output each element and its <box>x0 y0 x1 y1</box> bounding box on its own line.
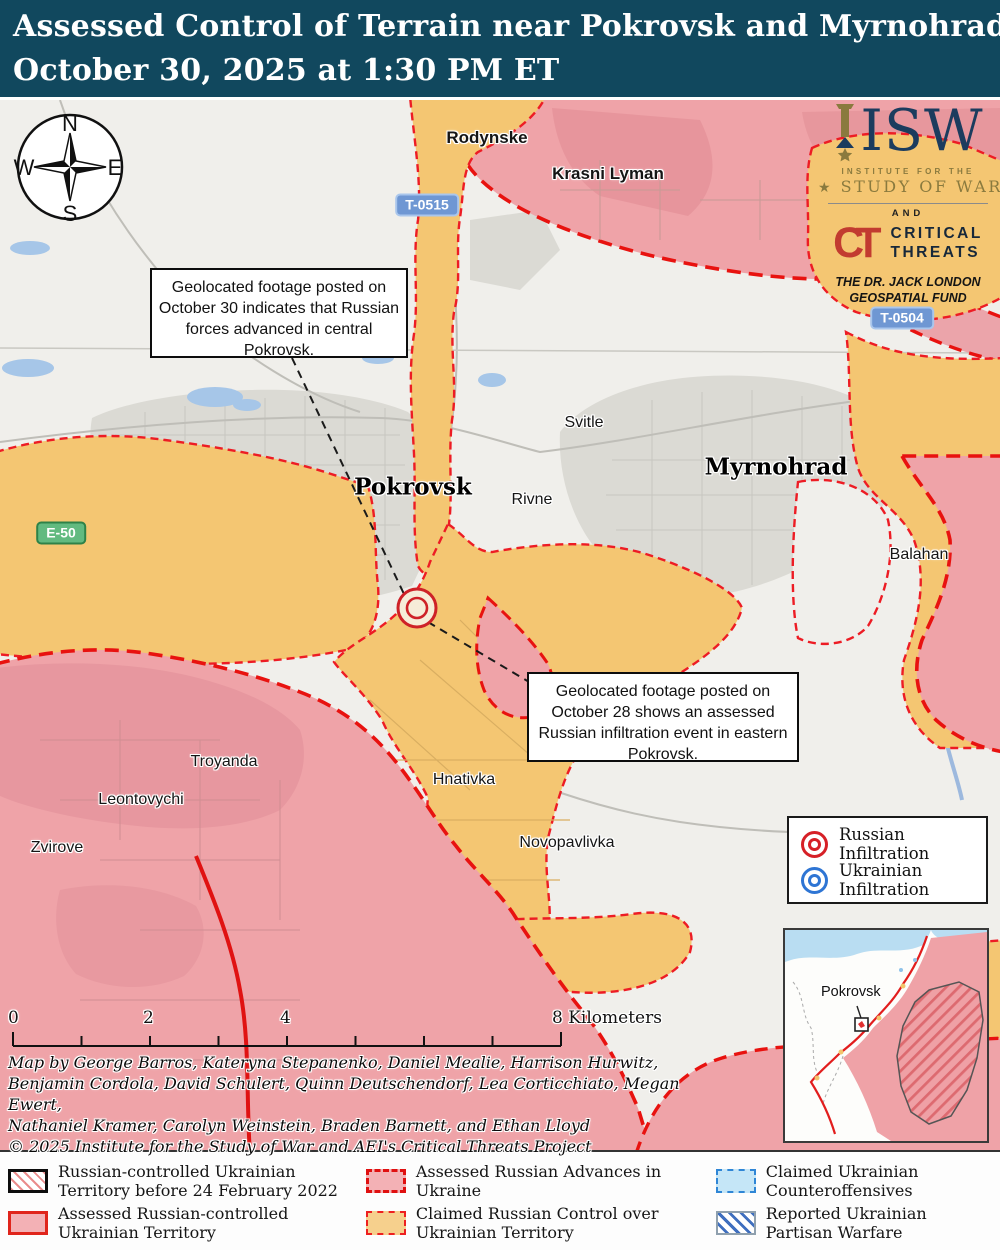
isw-study-of-war-text: ★ STUDY OF WAR <box>818 177 998 196</box>
scale-bar: 0 2 4 8 Kilometers <box>12 1008 712 1052</box>
road-shield-t0504: T-0504 <box>870 307 934 330</box>
place-label-novopavlivka: Novopavlivka <box>519 834 614 852</box>
page-title-line1: Assessed Control of Terrain near Pokrovs… <box>13 5 987 49</box>
place-label-zvirove: Zvirove <box>31 839 83 857</box>
scale-0: 0 <box>8 1008 19 1028</box>
swatch-ukrainian-counteroffensives <box>716 1169 756 1193</box>
swatch-claimed-russian <box>366 1211 406 1235</box>
claimed-russian-band-west <box>0 436 378 664</box>
credits-line3: Nathaniel Kramer, Carolyn Weinstein, Bra… <box>8 1115 688 1136</box>
map-credits: Map by George Barros, Kateryna Stepanenk… <box>8 1052 688 1157</box>
ct-monogram: CT <box>833 221 881 265</box>
critical-threats-logo: CT CRITICAL THREATS <box>818 221 998 265</box>
legend-item-prewar: Russian-controlled Ukrainian Territory b… <box>8 1160 366 1202</box>
swatch-partisan-warfare <box>716 1211 756 1235</box>
scale-4: 4 <box>280 1008 291 1028</box>
credits-line4: © 2025 Institute for the Study of War an… <box>8 1136 688 1157</box>
place-label-troyanda: Troyanda <box>191 753 258 771</box>
page-title-line2: October 30, 2025 at 1:30 PM ET <box>13 49 987 93</box>
place-label-krasni-lyman: Krasni Lyman <box>552 164 664 184</box>
legend-item-partisan: Reported Ukrainian Partisan Warfare <box>716 1202 994 1244</box>
inset-graphics <box>785 930 987 1141</box>
compass-s: S <box>63 201 78 226</box>
compass-e: E <box>108 155 123 180</box>
swatch-assessed-russian <box>8 1211 48 1235</box>
inset-pokrovsk-label: Pokrovsk <box>821 984 881 1000</box>
place-label-rodynske: Rodynske <box>446 128 527 148</box>
legend-item-assessed-control: Assessed Russian-controlled Ukrainian Te… <box>8 1202 366 1244</box>
compass-n: N <box>62 111 78 136</box>
legend-item-counteroffensives: Claimed Ukrainian Counteroffensives <box>716 1160 994 1202</box>
road-shield-t0515: T-0515 <box>395 194 459 217</box>
scale-2: 2 <box>143 1008 154 1028</box>
place-label-svitle: Svitle <box>564 414 603 432</box>
map-canvas: N E S W ISW INSTITUTE FOR THE <box>0 100 1000 1150</box>
swatch-russian-advances <box>366 1169 406 1193</box>
scale-8km: 8 Kilometers <box>552 1008 662 1028</box>
place-label-rivne: Rivne <box>512 491 553 509</box>
ct-threats-text: THREATS <box>891 243 983 262</box>
isw-institute-text: INSTITUTE FOR THE <box>818 167 998 176</box>
geospatial-fund-text: THE DR. JACK LONDON GEOSPATIAL FUND <box>818 274 998 306</box>
isw-pillar-icon <box>832 102 858 167</box>
credits-line2: Benjamin Cordola, David Schulert, Quinn … <box>8 1073 688 1115</box>
isw-wordmark: ISW <box>860 102 983 160</box>
place-label-myrnohrad: Myrnohrad <box>705 454 848 481</box>
ukrainian-infiltration-icon <box>801 867 828 894</box>
place-label-hnativka: Hnativka <box>433 771 495 789</box>
star-icon: ★ <box>818 180 833 196</box>
ct-critical-text: CRITICAL <box>891 224 983 243</box>
place-label-pokrovsk: Pokrovsk <box>354 474 472 501</box>
road-shield-e50: E-50 <box>36 522 86 545</box>
infiltration-legend-box: Russian Infiltration Ukrainian Infiltrat… <box>787 816 988 904</box>
russian-infiltration-icon <box>801 831 828 858</box>
credits-line1: Map by George Barros, Kateryna Stepanenk… <box>8 1052 688 1073</box>
swatch-prewar-territory <box>8 1169 48 1193</box>
scale-bar-ticks <box>12 1030 572 1048</box>
inset-locator-map: Pokrovsk <box>783 928 989 1143</box>
compass-w: W <box>14 155 35 180</box>
isw-ct-logo-block: ISW INSTITUTE FOR THE ★ STUDY OF WAR AND… <box>818 102 998 306</box>
isw-map-page: Assessed Control of Terrain near Pokrovs… <box>0 0 1000 1250</box>
legend-item-advances: Assessed Russian Advances in Ukraine <box>366 1160 716 1202</box>
place-label-leontovychi: Leontovychi <box>98 791 183 809</box>
callout-october-30: Geolocated footage posted on October 30 … <box>150 268 408 358</box>
place-label-balahan: Balahan <box>890 546 949 564</box>
legend-ukrainian-infiltration: Ukrainian Infiltration <box>801 862 986 898</box>
callout-october-28: Geolocated footage posted on October 28 … <box>527 672 799 762</box>
legend-russian-infiltration: Russian Infiltration <box>801 826 986 862</box>
legend-item-claimed-control: Claimed Russian Control over Ukrainian T… <box>366 1202 716 1244</box>
logo-and-text: AND <box>828 203 988 219</box>
compass-rose: N E S W <box>12 105 128 232</box>
title-bar: Assessed Control of Terrain near Pokrovs… <box>0 0 1000 100</box>
russian-infiltration-marker <box>398 589 436 627</box>
map-legend: Russian-controlled Ukrainian Territory b… <box>0 1150 1000 1250</box>
southwest-inner-shade2 <box>56 885 203 987</box>
